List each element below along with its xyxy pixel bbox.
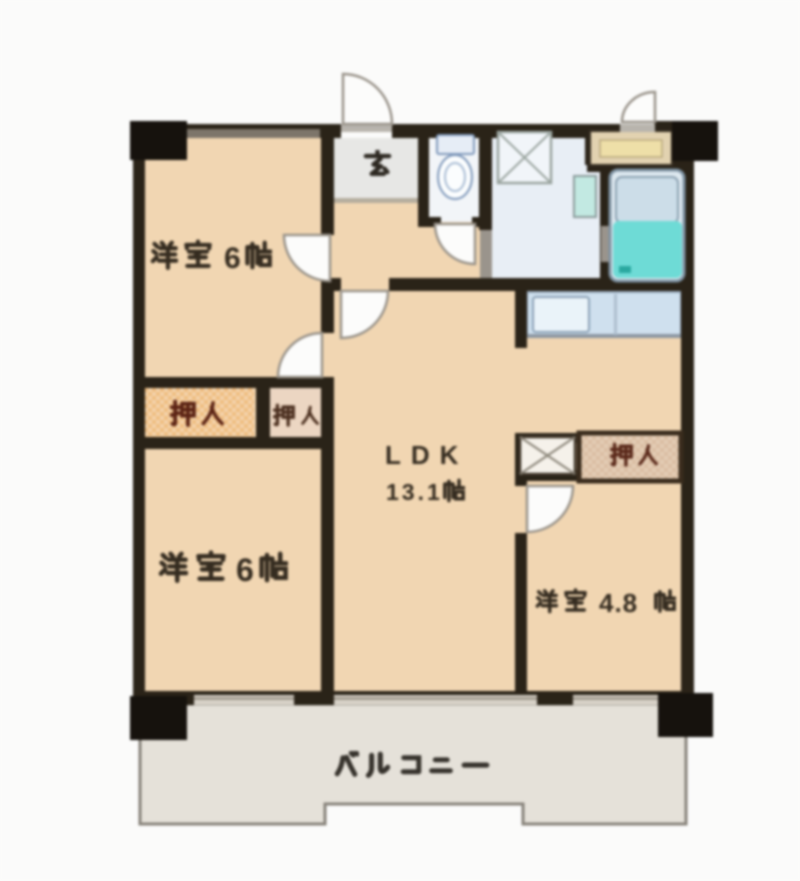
svg-text:4.8: 4.8 — [599, 588, 638, 618]
svg-text:13.1: 13.1 — [386, 479, 443, 505]
svg-text:6: 6 — [224, 242, 241, 275]
svg-text:6: 6 — [236, 552, 254, 588]
svg-text:LDK: LDK — [385, 440, 468, 470]
